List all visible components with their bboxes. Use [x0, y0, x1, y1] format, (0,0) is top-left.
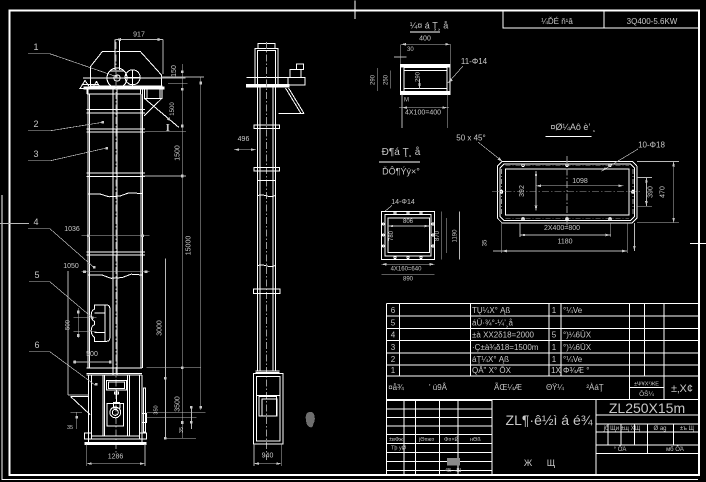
svg-text:1500: 1500: [170, 102, 176, 116]
svg-text:3: 3: [33, 149, 38, 159]
svg-text:áŢ¼X° Ąß: áŢ¼X° Ąß: [472, 355, 509, 364]
svg-text:¼¤ á Ţ¸ å: ¼¤ á Ţ¸ å: [410, 21, 449, 31]
svg-text:150: 150: [171, 65, 178, 77]
svg-text:1180: 1180: [557, 239, 572, 246]
svg-text:1098: 1098: [572, 178, 588, 185]
svg-text:392: 392: [519, 185, 526, 197]
svg-text:917: 917: [133, 32, 145, 39]
svg-text:4X160=640: 4X160=640: [391, 267, 423, 273]
svg-text:806: 806: [403, 219, 414, 225]
svg-text:áŪ·¾°-¼’¸å: áŪ·¾°-¼’¸å: [472, 318, 514, 327]
svg-text:1X: 1X: [551, 366, 561, 375]
svg-text:1050: 1050: [63, 263, 79, 270]
svg-text:°)¼6ŪX: °)¼6ŪX: [563, 343, 592, 352]
svg-text:870: 870: [435, 230, 441, 241]
svg-text:ZL250X15m: ZL250X15m: [609, 400, 685, 416]
svg-text:1500: 1500: [175, 145, 182, 161]
svg-text:3: 3: [391, 343, 396, 352]
svg-text:Ø ag: Ø ag: [653, 426, 666, 432]
svg-text:6: 6: [391, 306, 396, 315]
svg-text:¤å¾: ¤å¾: [388, 383, 404, 392]
svg-text:496: 496: [238, 136, 250, 143]
svg-text:°)¼6ŪX: °)¼6ŪX: [563, 331, 592, 340]
svg-text:Щ: Щ: [547, 458, 556, 468]
svg-text:2X400=800: 2X400=800: [544, 225, 580, 232]
svg-text:јб Щи ±щ ХЩ: јб Щи ±щ ХЩ: [603, 426, 641, 432]
svg-text:1: 1: [552, 306, 557, 315]
svg-text:3000: 3000: [157, 320, 164, 336]
svg-text:·Ç±à¾δ18=1500m: ·Ç±à¾δ18=1500m: [472, 343, 539, 352]
svg-text:4: 4: [33, 217, 38, 227]
svg-text:ŌŜ¼: ŌŜ¼: [639, 389, 654, 398]
svg-text:±Ψ¥X¹ЖЕ: ±Ψ¥X¹ЖЕ: [634, 382, 659, 388]
svg-text:' ú9Å: ' ú9Å: [429, 383, 448, 392]
svg-text:5: 5: [34, 270, 39, 280]
svg-text:35: 35: [67, 425, 73, 431]
svg-text:940: 940: [262, 453, 274, 460]
svg-text:±‚Χ¢: ±‚Χ¢: [671, 383, 693, 395]
svg-text:400: 400: [419, 36, 431, 43]
svg-text:10-Φ18: 10-Φ18: [638, 141, 665, 150]
svg-text:įΘ¤ж¤: įΘ¤ж¤: [419, 437, 434, 443]
svg-text:50 x 45°: 50 x 45°: [456, 134, 485, 143]
svg-text:±ъ Щ: ±ъ Щ: [680, 426, 695, 432]
svg-text:500: 500: [86, 351, 98, 358]
svg-text:Φ¾Æ °: Φ¾Æ °: [563, 366, 589, 375]
svg-text:нΘß: нΘß: [470, 437, 481, 443]
svg-text:350: 350: [154, 405, 160, 414]
svg-text:°¼Ve: °¼Ve: [563, 355, 583, 364]
svg-text:2: 2: [391, 355, 396, 364]
svg-text:ZL¶·ê½ì á é¾: ZL¶·ê½ì á é¾: [506, 412, 593, 428]
svg-text:Đ¶á Ţ¸ å: Đ¶á Ţ¸ å: [382, 146, 421, 158]
svg-text:1: 1: [552, 355, 557, 364]
svg-text:ÃŒ¼Æ: ÃŒ¼Æ: [494, 383, 522, 392]
svg-text:±à XX2δ18=2000: ±à XX2δ18=2000: [472, 331, 535, 340]
svg-text:ĎÔ¶Ýý×°: ĎÔ¶Ýý×°: [382, 167, 420, 177]
svg-text:780: 780: [389, 230, 395, 241]
svg-text:6: 6: [34, 340, 39, 350]
svg-text:I: I: [166, 122, 170, 134]
svg-text:4X100=400: 4X100=400: [405, 110, 441, 117]
svg-text:35: 35: [179, 427, 185, 433]
svg-text:14-Φ14: 14-Φ14: [391, 199, 415, 206]
svg-text:390: 390: [648, 186, 655, 198]
svg-text:5: 5: [391, 318, 396, 327]
svg-text:290: 290: [371, 74, 377, 85]
svg-text:°¼Ve: °¼Ve: [563, 306, 583, 315]
svg-text:Ж: Ж: [524, 458, 533, 468]
svg-text:1: 1: [33, 42, 38, 52]
svg-text:4Б ¬Ш: 4Б ¬Ш: [445, 468, 461, 474]
svg-text:1: 1: [552, 343, 557, 352]
svg-text:5: 5: [552, 331, 557, 340]
svg-text:470: 470: [660, 186, 667, 198]
svg-text:ΘΫ¼: ΘΫ¼: [546, 383, 564, 392]
svg-text:890: 890: [403, 277, 414, 283]
svg-text:Тþ уØ: Тþ уØ: [391, 446, 407, 452]
svg-text:¤Ø¼Aô è’ ¸: ¤Ø¼Aô è’ ¸: [550, 122, 595, 132]
svg-text:250: 250: [384, 74, 390, 85]
svg-text:±вФж: ±вФж: [389, 437, 403, 443]
svg-text:11-Φ14: 11-Φ14: [461, 57, 488, 66]
svg-text:° ŌΆ: ° ŌΆ: [614, 446, 627, 453]
svg-text:QĀ" X° ŌX: QĀ" X° ŌX: [472, 366, 512, 375]
svg-text:1286: 1286: [108, 454, 124, 461]
svg-text:3500: 3500: [175, 396, 182, 412]
svg-text:1036: 1036: [64, 226, 80, 233]
svg-text:TŲ¼X° Ąß: TŲ¼X° Ąß: [472, 306, 510, 315]
svg-text:2: 2: [33, 119, 38, 129]
svg-text:M: M: [404, 98, 409, 104]
svg-text:1: 1: [391, 366, 396, 375]
svg-text:²ÀáŢ: ²ÀáŢ: [586, 383, 603, 392]
svg-text:Φ¤×Ǿ: Φ¤×Ǿ: [444, 436, 460, 443]
svg-text:1190: 1190: [453, 229, 459, 243]
svg-text:290: 290: [416, 71, 422, 82]
svg-text:мб ŌΆ: мб ŌΆ: [666, 446, 684, 453]
svg-text:500: 500: [66, 319, 72, 330]
svg-text:35: 35: [483, 239, 489, 246]
svg-text:3Q400-5.6KW: 3Q400-5.6KW: [627, 17, 678, 26]
svg-text:30: 30: [407, 47, 414, 53]
svg-text:¼ĎÉ ň¹â: ¼ĎÉ ň¹â: [541, 17, 573, 26]
svg-text:4: 4: [391, 331, 396, 340]
svg-text:15000: 15000: [186, 236, 193, 256]
